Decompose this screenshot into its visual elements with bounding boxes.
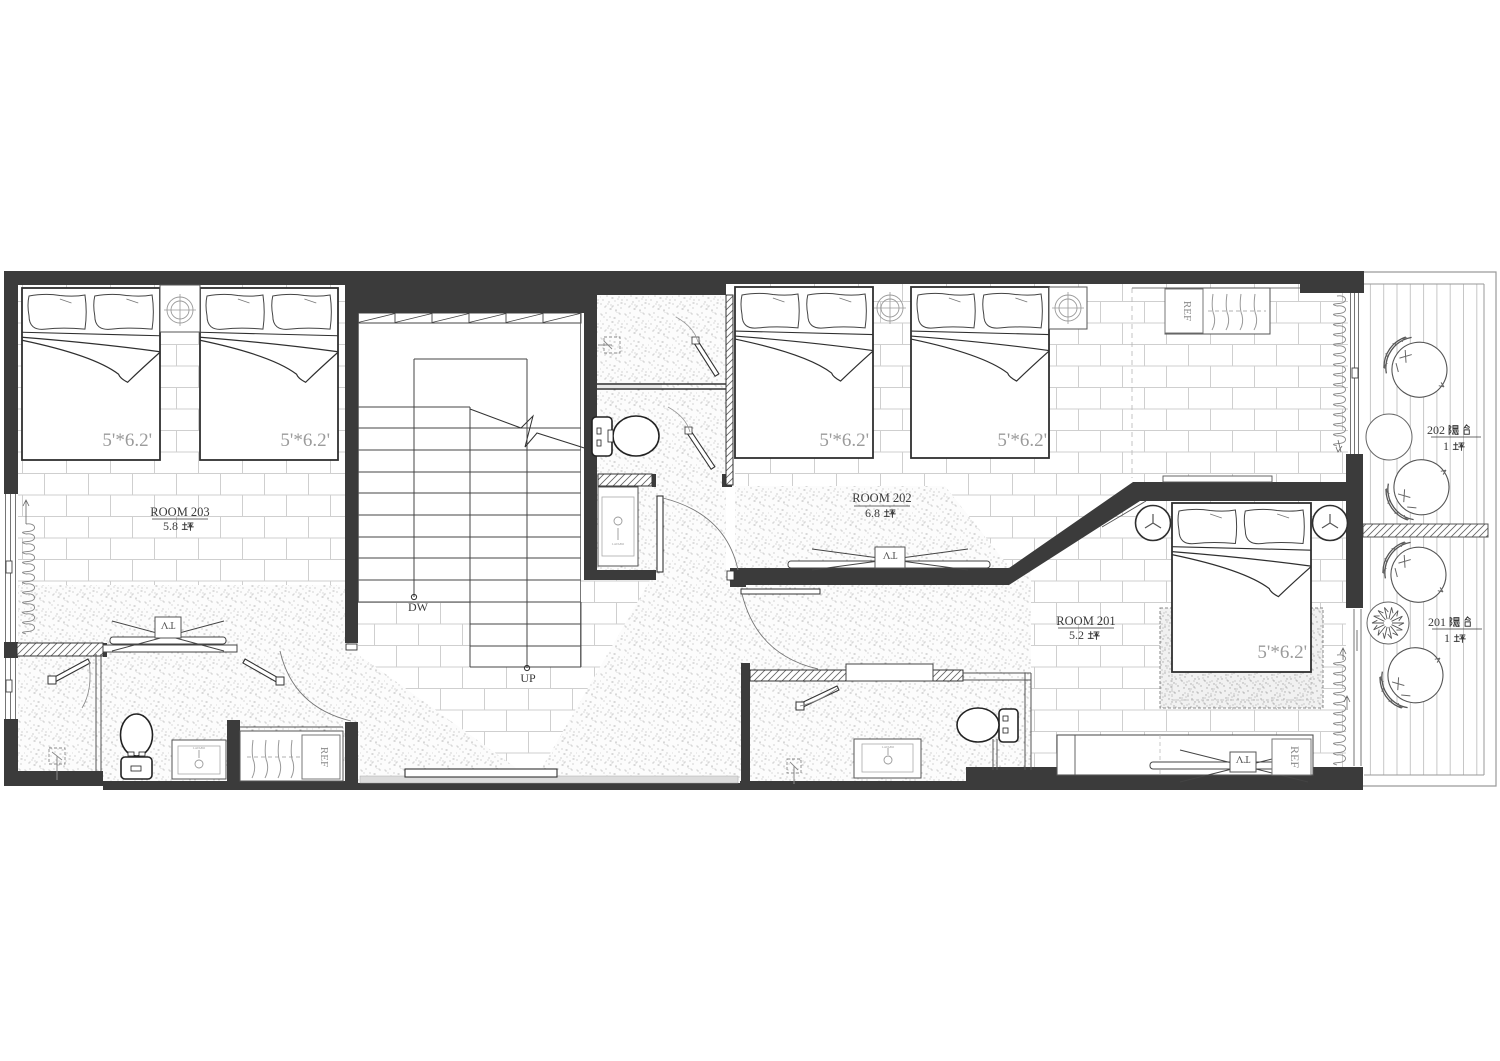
svg-text:TV: TV: [883, 549, 898, 561]
svg-text:6.8: 6.8: [865, 506, 880, 520]
svg-text:REF: REF: [1181, 301, 1193, 321]
svg-text:REF: REF: [318, 747, 330, 767]
svg-text:UP: UP: [520, 671, 536, 685]
svg-text:5'*6.2': 5'*6.2': [1257, 642, 1307, 663]
svg-text:ROOM 201: ROOM 201: [1056, 614, 1115, 628]
svg-text:5'*6.2': 5'*6.2': [819, 430, 869, 451]
svg-text:ROOM 203: ROOM 203: [150, 505, 209, 519]
svg-text:TV: TV: [161, 619, 176, 631]
svg-text:ROOM 202: ROOM 202: [852, 491, 911, 505]
svg-text:REF: REF: [1288, 746, 1302, 768]
svg-text:LAVABO: LAVABO: [193, 746, 206, 750]
svg-text:LAVABO: LAVABO: [612, 542, 625, 546]
svg-text:5.8: 5.8: [163, 519, 178, 533]
svg-text:1: 1: [1444, 631, 1450, 645]
svg-text:201: 201: [1428, 615, 1446, 629]
svg-text:202: 202: [1427, 423, 1445, 437]
svg-text:1: 1: [1443, 439, 1449, 453]
svg-text:TV: TV: [1236, 753, 1251, 765]
svg-text:5'*6.2': 5'*6.2': [280, 430, 330, 451]
svg-text:5'*6.2': 5'*6.2': [102, 430, 152, 451]
svg-text:5.2: 5.2: [1069, 628, 1084, 642]
svg-text:LAVABO: LAVABO: [882, 745, 895, 749]
svg-text:5'*6.2': 5'*6.2': [997, 430, 1047, 451]
svg-text:DW: DW: [408, 600, 429, 614]
